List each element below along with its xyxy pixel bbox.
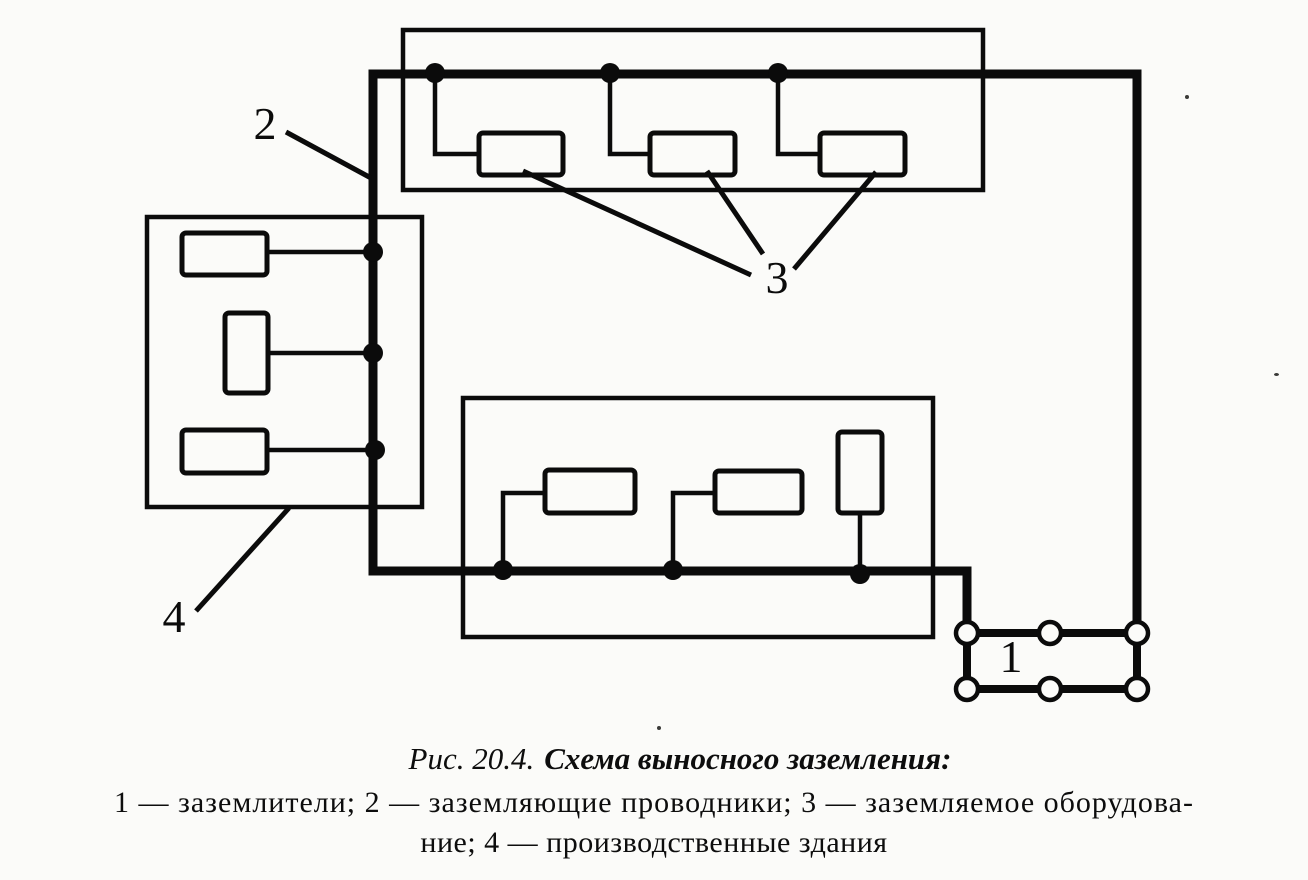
wires-bottom-building <box>503 493 860 574</box>
electrode-circle <box>1126 622 1148 644</box>
figure-page: 2 3 4 1 Рис. 20.4.Схема выносного заземл… <box>0 0 1308 880</box>
callout-4-buildings: 4 <box>163 591 186 642</box>
figure-title: Схема выносного заземления: <box>544 741 951 776</box>
scan-speck <box>657 726 661 730</box>
junction-dots <box>363 63 870 584</box>
equipment-box <box>838 432 882 513</box>
electrode-circle <box>956 678 978 700</box>
junction-dot <box>363 242 383 262</box>
building-top <box>403 30 983 190</box>
scan-speck <box>1274 373 1279 376</box>
equipment-box <box>650 133 735 175</box>
grounding-electrode-loop <box>956 622 1148 700</box>
equipment-box <box>182 430 267 473</box>
equipment-box <box>715 471 802 513</box>
building-left <box>147 217 422 507</box>
wires-top-building <box>435 74 820 154</box>
equipment-wire <box>435 74 479 154</box>
electrode-circle <box>956 622 978 644</box>
junction-dot <box>663 560 683 580</box>
callout-2-conductors: 2 <box>254 98 277 149</box>
equipment-wire <box>778 74 820 154</box>
equipment-box <box>820 133 905 175</box>
junction-dot <box>425 63 445 83</box>
equipment-wire <box>673 493 715 571</box>
equipment-box <box>225 313 268 393</box>
callout-line-3c <box>794 172 876 269</box>
junction-dot <box>850 564 870 584</box>
grounding-conductor-bus <box>373 74 1137 633</box>
callout-line-2 <box>286 132 371 178</box>
grounding-scheme-diagram: 2 3 4 1 <box>0 0 1308 740</box>
callout-line-3b <box>707 171 763 254</box>
callout-line-4 <box>196 508 289 611</box>
junction-dot <box>363 343 383 363</box>
figure-number: Рис. 20.4. <box>409 741 535 776</box>
callout-3-equipment: 3 <box>766 252 789 303</box>
callout-lines <box>196 132 876 611</box>
junction-dot <box>365 440 385 460</box>
callout-1-electrodes: 1 <box>1000 631 1023 682</box>
electrode-circle <box>1126 678 1148 700</box>
junction-dot <box>768 63 788 83</box>
equipment-wire <box>610 74 650 154</box>
electrode-circle <box>1039 678 1061 700</box>
equipment-box <box>182 233 267 275</box>
equipment-wire <box>503 493 545 571</box>
equipment-box <box>545 470 635 513</box>
figure-caption: Рис. 20.4.Схема выносного заземления: <box>26 741 1308 777</box>
junction-dot <box>493 560 513 580</box>
scan-speck <box>1185 95 1189 99</box>
figure-legend-line-1: 1 — заземлители; 2 — заземляющие проводн… <box>0 786 1308 820</box>
callout-numbers: 2 3 4 1 <box>163 98 1023 682</box>
wires-left-building <box>267 252 373 450</box>
junction-dot <box>600 63 620 83</box>
equipment-box <box>479 133 563 175</box>
figure-legend-line-2: ние; 4 — производственные здания <box>0 826 1308 860</box>
electrode-circle <box>1039 622 1061 644</box>
